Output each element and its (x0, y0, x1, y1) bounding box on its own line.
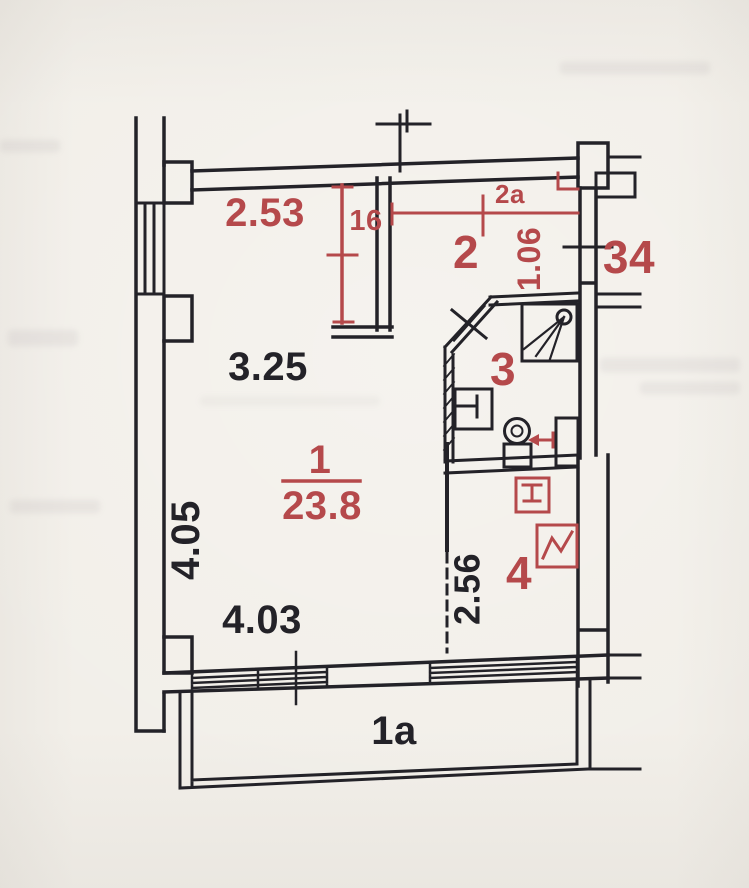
left-pilaster-top (164, 162, 192, 203)
left-pilaster-bottom (164, 637, 192, 673)
left-pilaster-mid (164, 296, 192, 341)
arrow-shaft (538, 433, 553, 447)
dim-side-height: 4.05 (164, 500, 208, 580)
dim-hall-height: 2.56 (447, 553, 488, 625)
room-2a-label: 2a (495, 179, 525, 209)
toilet-tank (504, 444, 531, 467)
neighbor-unit-label: 34 (603, 231, 655, 283)
room-3-label: 3 (490, 343, 516, 395)
room-1-area: 23.8 (282, 484, 362, 528)
room-4-label: 4 (506, 547, 532, 599)
dim-shaft-width: 16 (349, 205, 382, 237)
neighbor-stub-mid (596, 294, 640, 307)
dim-wall-upper: 3.25 (228, 345, 308, 389)
boxed-zigzag-glyph (543, 532, 572, 558)
toilet-bowl-inner (512, 426, 523, 437)
sink-tap (457, 396, 477, 417)
niche-dimension-line (392, 196, 578, 235)
toilet-bowl (505, 419, 530, 444)
right-wall-lower (578, 455, 608, 686)
boxed-tee-icon (516, 478, 549, 512)
boxed-zigzag-icon (537, 525, 577, 567)
shower-icon (522, 304, 577, 361)
sink-icon (455, 389, 492, 429)
dim-bottom-width: 4.03 (222, 598, 302, 642)
neighbor-stub-block (596, 173, 635, 197)
balcony-label: 1a (371, 709, 417, 753)
sink-body (455, 389, 492, 429)
left-window (136, 203, 164, 294)
right-wall-upper (580, 188, 596, 458)
bathroom-bottom-wall (445, 455, 578, 473)
left-wall (136, 118, 164, 731)
boxed-tee-glyph (523, 485, 541, 501)
toilet-icon (504, 419, 531, 468)
exterior-walls (136, 111, 640, 731)
dim-niche-height: 1.06 (511, 227, 547, 291)
shower-fan-lines (524, 317, 564, 359)
room-1-label: 1 (309, 438, 332, 482)
floor-plan-svg: 2.53 16 2a 2 1.06 34 3.25 3 1 23.8 4.05 … (0, 0, 749, 888)
dim-top-width: 2.53 (225, 191, 305, 235)
room-2-label: 2 (453, 226, 479, 278)
duct-box (556, 418, 578, 466)
neighbor-stub-bottom (608, 655, 640, 678)
top-right-wall-block (578, 143, 608, 188)
